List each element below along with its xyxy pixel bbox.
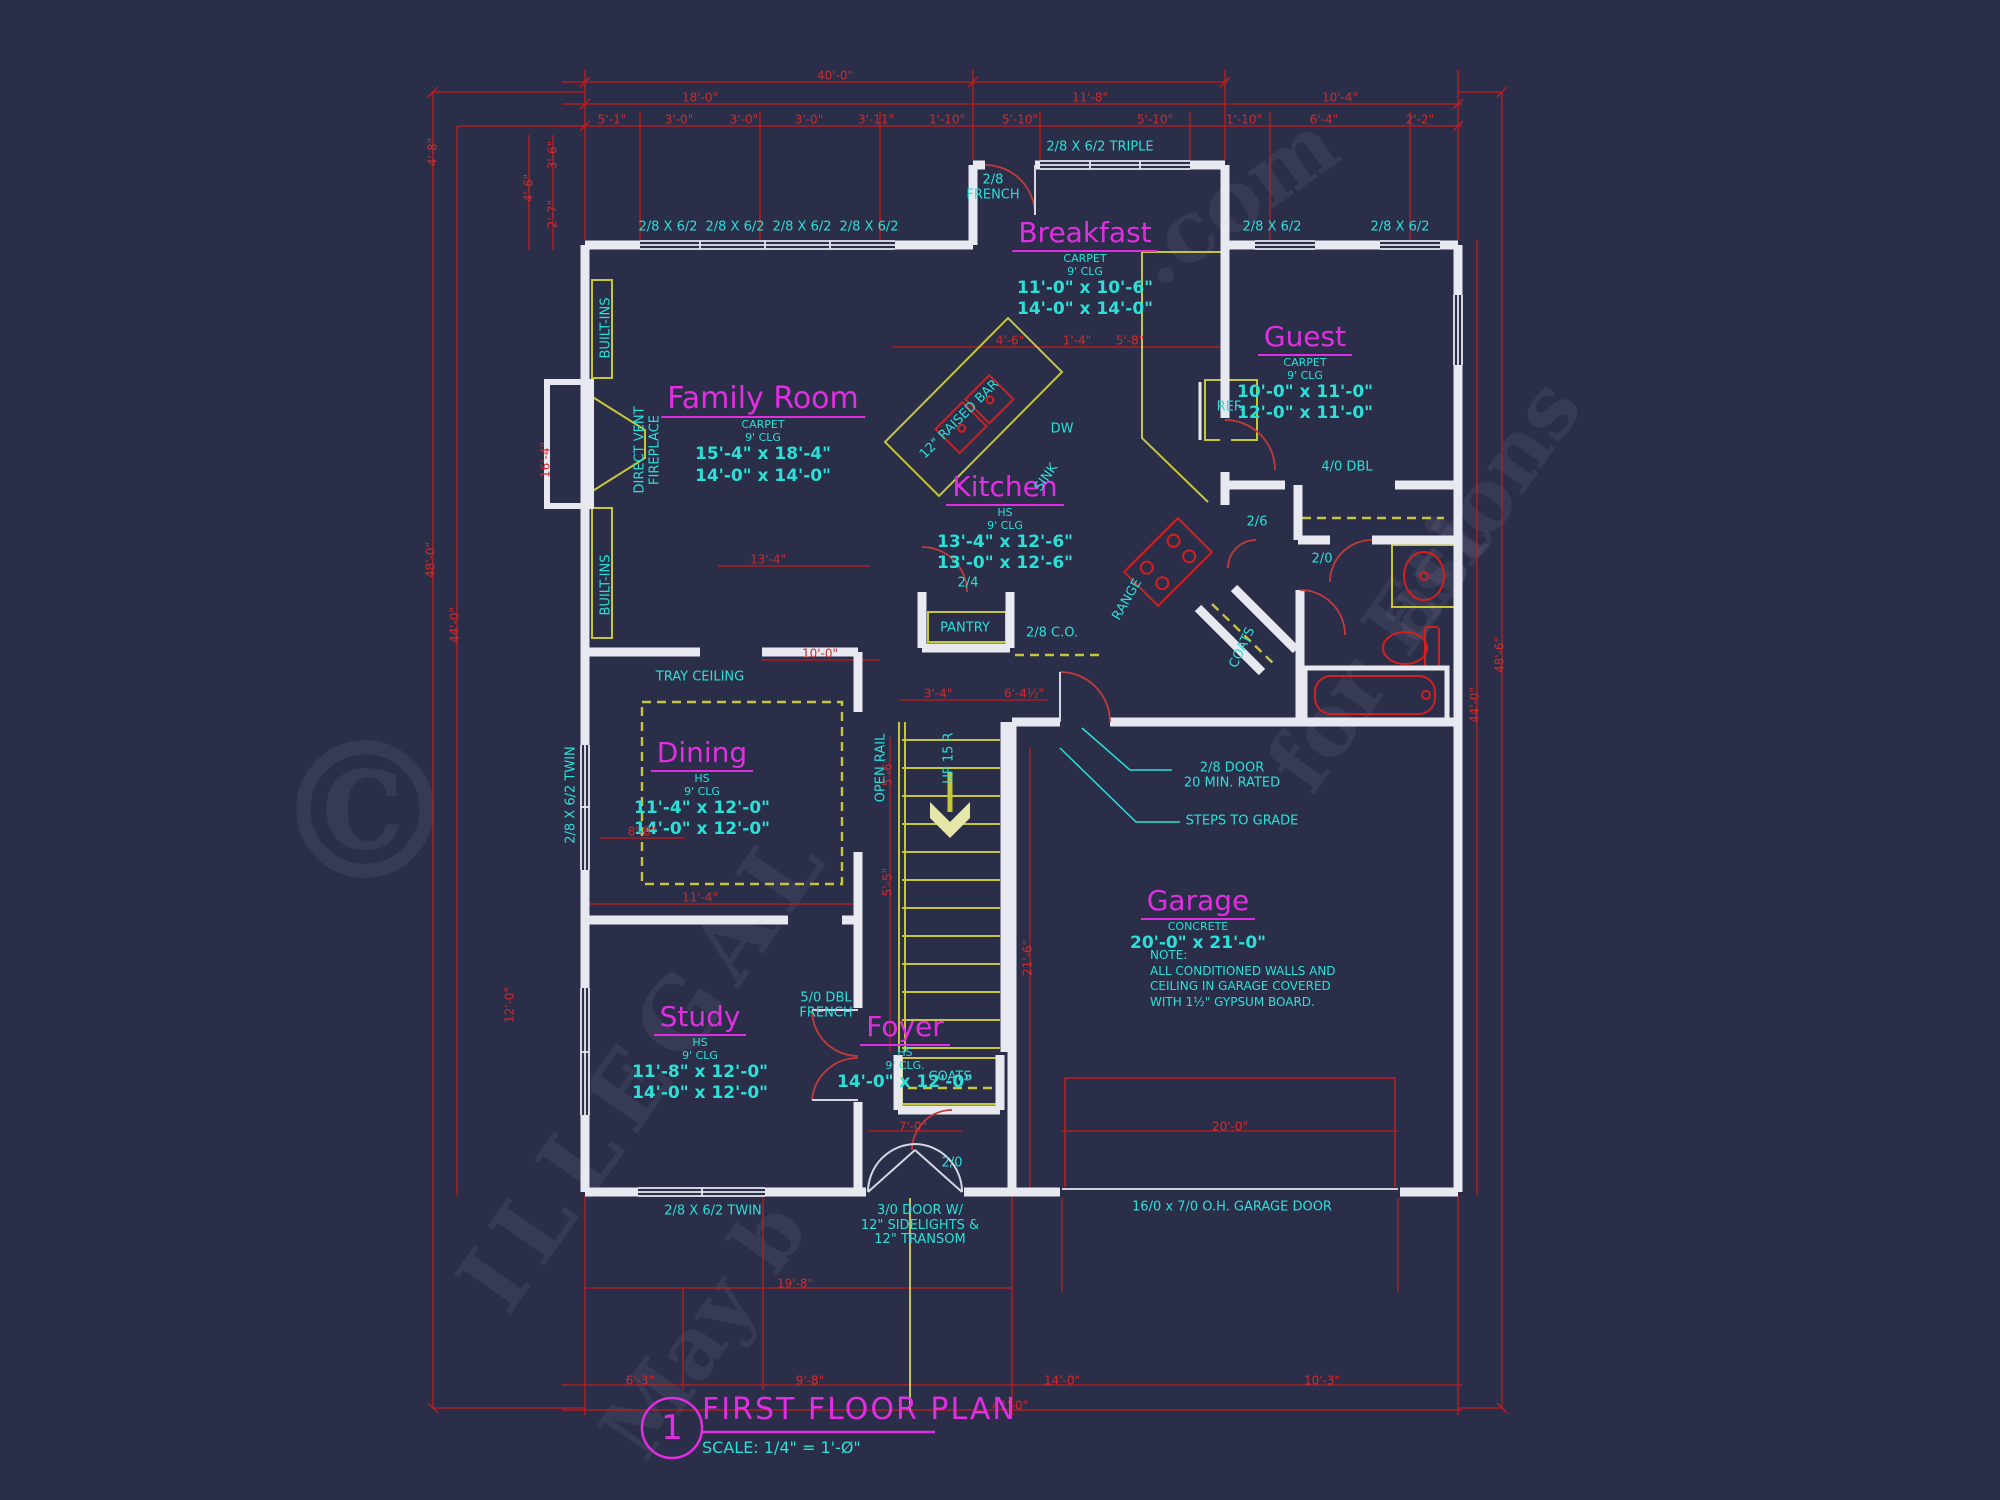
room-label-garage: Garage CONCRETE 20'-0" x 21'-0" (1130, 886, 1266, 954)
dimension-label: 21'-6" (1021, 940, 1034, 976)
room-ceiling: 9' CLG (1012, 265, 1157, 278)
dimension-label: 10'-4" (1322, 91, 1358, 104)
dimension-label: 5'-1" (598, 113, 626, 126)
floor-plan-drawing (0, 0, 2000, 1500)
annotation-stairs: UP 15 R (943, 732, 958, 783)
annotation-closet-door: 4/0 DBL (1321, 461, 1372, 476)
dimension-label: 6'-4½" (1004, 687, 1044, 700)
room-finish: CARPET (1012, 252, 1157, 265)
room-name: Foyer (860, 1012, 950, 1046)
room-ceiling: 9' CLG (632, 1049, 768, 1062)
room-size: 12'-0" x 11'-0" (1237, 403, 1373, 424)
dimension-label: 5'-8" (1116, 334, 1144, 347)
annotation-door: 2/4 (958, 577, 979, 592)
room-note: HS (837, 1046, 973, 1059)
room-name: Garage (1141, 886, 1256, 920)
annotation-window: 2/8 X 6/2 TWIN (565, 746, 580, 844)
bath-sink (1404, 552, 1444, 600)
dimension-label: 2'-2" (1406, 113, 1434, 126)
dimension-label: 3'-11" (858, 113, 894, 126)
room-note: HS (632, 1036, 768, 1049)
dimension-label: 11'-8" (1072, 91, 1108, 104)
dimension-label: 48'-6" (1493, 637, 1506, 673)
dimension-label: 1'-4" (1063, 334, 1091, 347)
annotation-window: 2/8 X 6/2 TWIN (664, 1205, 762, 1220)
toilet-bowl (1383, 632, 1427, 664)
annotation-window: 2/8 X 6/2 (839, 221, 898, 236)
room-size: 15'-4" x 18'-4" (661, 444, 865, 465)
dimension-label: 13'-4" (750, 553, 786, 566)
dimension-label: 3'-0" (795, 113, 823, 126)
room-name: Guest (1258, 322, 1352, 356)
room-name: Family Room (661, 382, 865, 418)
annotation-fireplace: DIRECT VENT FIREPLACE (633, 406, 662, 493)
dimension-label: 3'-6" (546, 141, 559, 169)
annotation-builtins: BUILT-INS (600, 298, 615, 359)
room-label-breakfast: Breakfast CARPET 9' CLG 11'-0" x 10'-6" … (1012, 218, 1157, 321)
plan-title: FIRST FLOOR PLAN (702, 1392, 1017, 1427)
dimension-label: 1'-10" (1226, 113, 1262, 126)
room-ceiling: 9' CLG (634, 785, 770, 798)
room-ceiling: 9' CLG (937, 519, 1073, 532)
dimension-label: 3'-0" (665, 113, 693, 126)
garage-note: NOTE: ALL CONDITIONED WALLS AND CEILING … (1150, 948, 1400, 1010)
room-size: 10'-0" x 11'-0" (1237, 382, 1373, 403)
room-size: 14'-0" x 14'-0" (1012, 299, 1157, 320)
sheet-detail-number: 1 (661, 1408, 683, 1448)
dimension-label: 16'-4" (539, 442, 552, 478)
floor-plan-canvas: © ILLEGAL May b for Est ations .com (0, 0, 2000, 1500)
dimension-label: 19'-8" (777, 1277, 813, 1290)
room-ceiling: 9' CLG (1237, 369, 1373, 382)
annotation-dishwasher: DW (1051, 423, 1074, 438)
annotation-french-door: 5/0 DBL FRENCH (799, 991, 852, 1020)
dimension-label: 8'-8" (628, 825, 656, 838)
plan-scale: SCALE: 1/4" = 1'-Ø" (702, 1438, 861, 1457)
annotation-door: 2/0 (1312, 553, 1333, 568)
leader-lines (1060, 728, 1180, 822)
room-finish: CARPET (661, 418, 865, 431)
room-label-kitchen: Kitchen HS 9' CLG 13'-4" x 12'-6" 13'-0"… (937, 472, 1073, 575)
dimension-label: 40'-0" (817, 69, 853, 82)
room-size: 13'-0" x 12'-6" (937, 553, 1073, 574)
room-note: HS (937, 506, 1073, 519)
dimension-label: 18'-0" (682, 91, 718, 104)
annotation-door: 2/0 (942, 1157, 963, 1172)
annotation-window: 2/8 X 6/2 (705, 221, 764, 236)
dimension-label: 9'-8" (796, 1374, 824, 1387)
dimension-label: 5'-5" (881, 868, 894, 896)
room-label-study: Study HS 9' CLG 11'-8" x 12'-0" 14'-0" x… (632, 1002, 768, 1105)
dimension-label: 6'-3" (626, 1374, 654, 1387)
dimension-label: 5'-6" (881, 758, 894, 786)
dimension-label: 3'-4" (924, 687, 952, 700)
room-size: 11'-4" x 12'-0" (634, 798, 770, 819)
annotation-coats: COATS (928, 1071, 971, 1086)
annotation-window: 2/8 X 6/2 (638, 221, 697, 236)
dimension-label: 5'-10" (1002, 113, 1038, 126)
annotation-rated-door: 2/8 DOOR 20 MIN. RATED (1184, 761, 1280, 790)
room-label-family: Family Room CARPET 9' CLG 15'-4" x 18'-4… (661, 382, 865, 487)
tub-interior (1315, 676, 1435, 714)
dimension-label: 4'-6" (522, 174, 535, 202)
annotation-garage-door: 16/0 x 7/0 O.H. GARAGE DOOR (1132, 1201, 1332, 1216)
room-name: Dining (651, 738, 753, 772)
room-name: Study (654, 1002, 747, 1036)
annotation-front-door: 3/0 DOOR W/ 12" SIDELIGHTS & 12" TRANSOM (861, 1204, 979, 1248)
annotation-refrigerator: REF. (1217, 401, 1244, 416)
annotation-steps: STEPS TO GRADE (1186, 815, 1299, 830)
room-finish: CONCRETE (1130, 920, 1266, 933)
dimension-label: 4'-8" (426, 138, 439, 166)
annotation-door: 2/8 FRENCH (966, 173, 1019, 202)
dimension-label: 6'-4" (1310, 113, 1338, 126)
annotation-door: 2/6 (1247, 516, 1268, 531)
room-size: 13'-4" x 12'-6" (937, 532, 1073, 553)
room-size: 11'-0" x 10'-6" (1012, 278, 1157, 299)
dimension-label: 3'-0" (730, 113, 758, 126)
dimension-label: 5'-10" (1137, 113, 1173, 126)
dimension-label: 1'-10" (929, 113, 965, 126)
annotation-window: 2/8 X 6/2 TRIPLE (1046, 141, 1153, 156)
room-size: 14'-0" x 12'-0" (632, 1083, 768, 1104)
dimension-label: 10'-3" (1304, 1374, 1340, 1387)
dimension-label: 2'-7" (546, 200, 559, 228)
room-ceiling: 9' CLG (661, 431, 865, 444)
room-size: 14'-0" x 14'-0" (661, 466, 865, 487)
room-name: Breakfast (1012, 218, 1157, 252)
dimension-label: 10'-0" (802, 647, 838, 660)
dimension-label: 4'-6" (996, 334, 1024, 347)
dimension-label: 11'-4" (682, 891, 718, 904)
room-finish: CARPET (1237, 356, 1373, 369)
dimension-label: 7'-0" (899, 1120, 927, 1133)
annotation-window: 2/8 X 6/2 (1370, 221, 1429, 236)
dimension-label: 14'-0" (1044, 1374, 1080, 1387)
dimension-label: 12'-0" (503, 987, 516, 1023)
annotation-tray-ceiling: TRAY CEILING (656, 671, 744, 686)
room-label-guest: Guest CARPET 9' CLG 10'-0" x 11'-0" 12'-… (1237, 322, 1373, 425)
annotation-pantry: PANTRY (940, 622, 990, 637)
dimension-label: 20'-0" (1212, 1120, 1248, 1133)
dimension-label: 44'-0" (448, 607, 461, 643)
dimension-label: 48'-0" (424, 542, 437, 578)
room-size: 11'-8" x 12'-0" (632, 1062, 768, 1083)
annotation-cased-opening: 2/8 C.O. (1026, 627, 1078, 642)
annotation-window: 2/8 X 6/2 (1242, 221, 1301, 236)
room-note: HS (634, 772, 770, 785)
dimension-label: 44'-0" (1468, 687, 1481, 723)
annotation-window: 2/8 X 6/2 (772, 221, 831, 236)
annotation-builtins: BUILT-INS (600, 555, 615, 616)
